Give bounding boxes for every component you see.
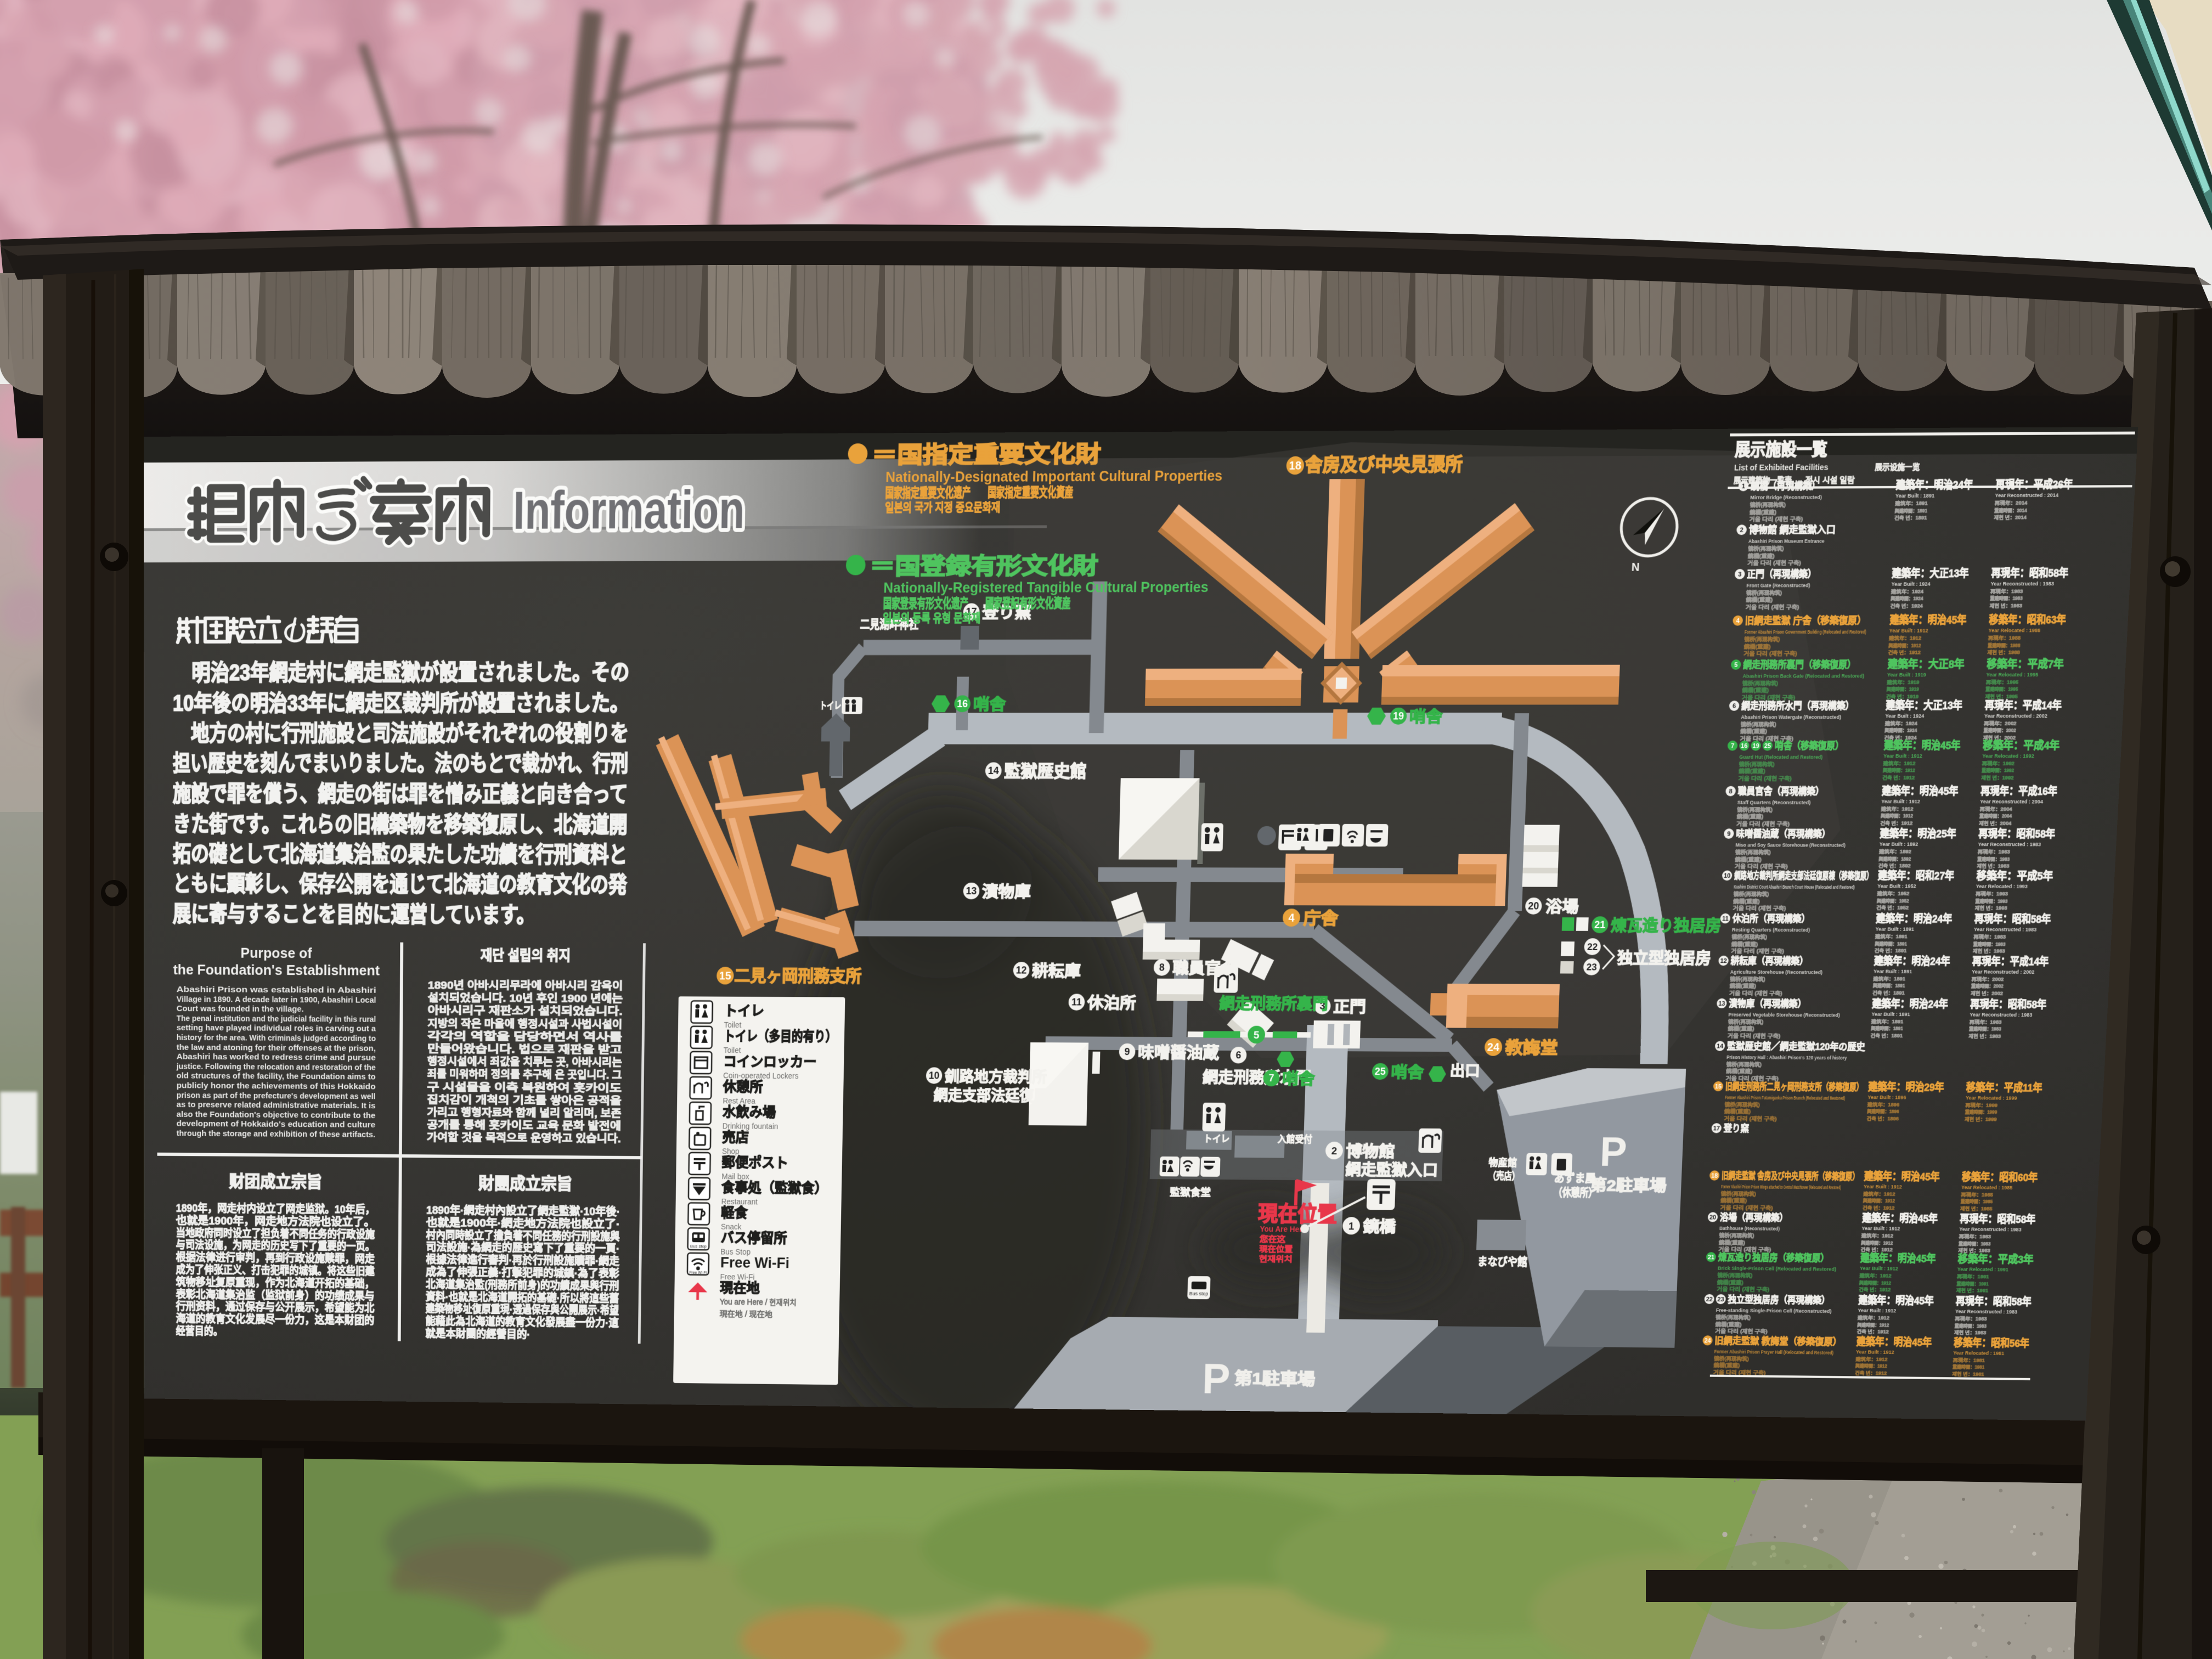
svg-text:建築年：大正13年: 建築年：大正13年 xyxy=(1892,567,1969,580)
svg-text:Miso and Soy Sauce Storehouse: Miso and Soy Sauce Storehouse (Reconstru… xyxy=(1735,842,1846,849)
svg-text:재현 년：1993: 재현 년：1993 xyxy=(1975,905,2008,911)
svg-text:移築年：昭和63年: 移築年：昭和63年 xyxy=(1989,613,2067,627)
svg-text:旧網走刑務所二見ヶ岡刑務支所（移築復原）: 旧網走刑務所二見ヶ岡刑務支所（移築復原） xyxy=(1725,1081,1864,1093)
svg-text:거울 다리 (재현 구축): 거울 다리 (재현 구축) xyxy=(1715,1328,1768,1334)
svg-text:再現年：1999: 再現年：1999 xyxy=(1965,1102,1997,1108)
svg-text:건축 년：1891: 건축 년：1891 xyxy=(1894,515,1927,521)
svg-text:鏡橋(重建): 鏡橋(重建) xyxy=(1729,983,1756,989)
svg-text:Year Built : 1892: Year Built : 1892 xyxy=(1879,842,1918,847)
svg-text:거울 다리 (재현 구축): 거울 다리 (재현 구축) xyxy=(1746,604,1799,611)
svg-text:鏡橋(重建): 鏡橋(重建) xyxy=(1741,687,1769,693)
svg-text:거울 다리 (재현 구축): 거울 다리 (재현 구축) xyxy=(1720,1204,1773,1211)
svg-text:再現年：2014: 再現年：2014 xyxy=(1995,500,2028,506)
svg-text:興建時間：1912: 興建時間：1912 xyxy=(1863,1198,1895,1204)
svg-text:建筑年：1912: 建筑年：1912 xyxy=(1863,1191,1895,1197)
svg-text:Bathhouse (Reconstructed): Bathhouse (Reconstructed) xyxy=(1719,1226,1780,1232)
svg-text:Year Built : 1891: Year Built : 1891 xyxy=(1874,969,1912,975)
svg-text:17: 17 xyxy=(1713,1125,1720,1132)
svg-text:거울 다리 (재현 구축): 거울 다리 (재현 구축) xyxy=(1724,1115,1777,1122)
svg-text:24: 24 xyxy=(1704,1338,1712,1344)
svg-text:興建時間：1912: 興建時間：1912 xyxy=(1883,768,1916,773)
svg-text:再現年：1991: 再現年：1991 xyxy=(1957,1274,1989,1280)
svg-text:建築年：明治45年: 建築年：明治45年 xyxy=(1864,1170,1940,1183)
svg-text:镜桥(再现构筑): 镜桥(再现构筑) xyxy=(1730,976,1765,983)
svg-text:建築年：明治24年: 建築年：明治24年 xyxy=(1895,478,1973,492)
svg-text:再現年：1981: 再現年：1981 xyxy=(1953,1357,1985,1363)
svg-text:再現年：昭和58年: 再現年：昭和58年 xyxy=(1991,566,2069,579)
svg-text:興建時間：1912: 興建時間：1912 xyxy=(1857,1322,1889,1328)
svg-text:镜桥(再现构筑): 镜桥(再现构筑) xyxy=(1734,891,1769,897)
svg-text:Prison History Hall : Abashiri: Prison History Hall : Abashiri Prison's … xyxy=(1726,1054,1847,1061)
svg-text:興建時間：1952: 興建時間：1952 xyxy=(1877,898,1909,904)
svg-text:建筑年：1919: 建筑年：1919 xyxy=(1886,679,1920,685)
svg-text:건축 년：1891: 건축 년：1891 xyxy=(1872,990,1905,996)
svg-text:鏡橋(重建): 鏡橋(重建) xyxy=(1724,1108,1751,1114)
svg-text:鏡橋(重建): 鏡橋(重建) xyxy=(1747,553,1775,560)
svg-text:List of Exhibited Facilities: List of Exhibited Facilities xyxy=(1734,463,1829,473)
svg-text:重建時間：1983: 重建時間：1983 xyxy=(1973,941,2006,947)
svg-text:浴場（再現構築）: 浴場（再現構築） xyxy=(1720,1212,1788,1223)
svg-text:鏡橋(重建): 鏡橋(重建) xyxy=(1738,768,1765,774)
svg-text:재현 년：1983: 재현 년：1983 xyxy=(1958,1248,1990,1254)
svg-text:건축 년：1896: 건축 년：1896 xyxy=(1866,1116,1899,1122)
svg-text:镜桥(再现构筑): 镜桥(再现构筑) xyxy=(1719,1232,1754,1239)
svg-text:休泊所（再現構築）: 休泊所（再現構築） xyxy=(1732,913,1810,924)
svg-text:重建時間：1988: 重建時間：1988 xyxy=(1988,642,2021,648)
svg-text:鏡橋(重建): 鏡橋(重建) xyxy=(1734,856,1762,862)
svg-text:镜桥(再现构筑): 镜桥(再现构筑) xyxy=(1746,590,1782,596)
svg-text:Abashiri Prison Watergate (Rec: Abashiri Prison Watergate (Reconstructed… xyxy=(1741,714,1841,720)
svg-text:建筑年：1891: 建筑年：1891 xyxy=(1894,500,1928,506)
svg-text:재현 년：1983: 재현 년：1983 xyxy=(1989,603,2022,609)
svg-text:Year Built : 1891: Year Built : 1891 xyxy=(1895,493,1935,499)
svg-text:建築年：明治45年: 建築年：明治45年 xyxy=(1860,1252,1936,1265)
svg-text:鏡橋(重建): 鏡橋(重建) xyxy=(1740,728,1767,734)
svg-text:再現年：1983: 再現年：1983 xyxy=(1959,1234,1991,1240)
svg-text:鏡橋(重建): 鏡橋(重建) xyxy=(1713,1362,1740,1369)
svg-text:移築年：平成4年: 移築年：平成4年 xyxy=(1983,739,2060,752)
svg-text:건축 년：1912: 건축 년：1912 xyxy=(1859,1286,1891,1293)
svg-text:재현 년：1992: 재현 년：1992 xyxy=(1981,775,2014,780)
svg-text:建筑年：1912: 建筑年：1912 xyxy=(1859,1273,1892,1279)
svg-text:移築年：平成7年: 移築年：平成7年 xyxy=(1987,657,2064,670)
svg-text:6: 6 xyxy=(1733,703,1736,709)
svg-text:Year Built : 1912: Year Built : 1912 xyxy=(1861,1226,1900,1232)
svg-text:正門（再現構築）: 正門（再現構築） xyxy=(1747,568,1816,580)
svg-text:再現年：平成26年: 再現年：平成26年 xyxy=(1995,478,2073,492)
svg-text:展示设施一览: 展示设施一览 xyxy=(1875,462,1920,471)
svg-text:Year Built : 1924: Year Built : 1924 xyxy=(1891,581,1930,587)
svg-text:興建時間：1924: 興建時間：1924 xyxy=(1884,727,1917,733)
svg-text:建築年：明治45年: 建築年：明治45年 xyxy=(1883,739,1961,752)
svg-text:거울 다리 (재현 구축): 거울 다리 (재현 구축) xyxy=(1718,1246,1771,1252)
svg-text:鏡橋(重建): 鏡橋(重建) xyxy=(1733,898,1760,904)
svg-text:建筑年：1892: 建筑年：1892 xyxy=(1878,849,1912,854)
svg-text:建築年：明治45年: 建築年：明治45年 xyxy=(1862,1212,1938,1225)
svg-text:18: 18 xyxy=(1711,1173,1718,1180)
svg-text:鏡橋(重建): 鏡橋(重建) xyxy=(1714,1321,1741,1328)
svg-text:거울 다리 (재현 구축): 거울 다리 (재현 구축) xyxy=(1731,948,1784,955)
svg-text:建築年：明治24年: 建築年：明治24年 xyxy=(1876,912,1953,926)
svg-text:재현 년：2004: 재현 년：2004 xyxy=(1979,820,2012,826)
svg-text:Staff Quarters (Reconstructed): Staff Quarters (Reconstructed) xyxy=(1737,800,1811,806)
svg-text:鏡橋(重建): 鏡橋(重建) xyxy=(1725,1068,1753,1074)
svg-text:23: 23 xyxy=(1717,1296,1724,1303)
svg-text:건축 년：1912: 건축 년：1912 xyxy=(1855,1370,1887,1376)
svg-text:镜桥(再现构筑): 镜桥(再现构筑) xyxy=(1726,1061,1762,1068)
svg-text:哨舎（移築復原）: 哨舎（移築復原） xyxy=(1775,740,1844,752)
svg-text:Agriculture Storehouse (Recons: Agriculture Storehouse (Reconstructed) xyxy=(1730,969,1823,976)
svg-text:Former Abashiri Prison Futamig: Former Abashiri Prison Futamigaoka Priso… xyxy=(1725,1094,1845,1102)
svg-text:镜桥(再现构筑): 镜桥(再现构筑) xyxy=(1716,1314,1751,1321)
svg-text:Year Built : 1891: Year Built : 1891 xyxy=(1875,926,1914,932)
svg-text:14: 14 xyxy=(1717,1043,1724,1050)
svg-text:镜桥(再现构筑): 镜桥(再现构筑) xyxy=(1748,545,1784,552)
svg-text:建築年：明治24年: 建築年：明治24年 xyxy=(1872,997,1949,1011)
svg-text:재현 년：2014: 재현 년：2014 xyxy=(1994,515,2027,521)
svg-text:建筑年：1912: 建筑年：1912 xyxy=(1857,1315,1890,1321)
svg-text:8: 8 xyxy=(1729,788,1733,795)
svg-text:7: 7 xyxy=(1731,743,1735,749)
svg-text:镜桥(再现构筑): 镜桥(再现构筑) xyxy=(1728,1019,1764,1025)
svg-text:再現年：1983: 再現年：1983 xyxy=(1990,589,2023,595)
svg-text:鏡橋(重建): 鏡橋(重建) xyxy=(1749,509,1777,516)
svg-text:再現年：1985: 再現年：1985 xyxy=(1961,1192,1993,1198)
svg-text:重建時間：1991: 重建時間：1991 xyxy=(1956,1281,1989,1287)
svg-text:Year Reconstructed : 2004: Year Reconstructed : 2004 xyxy=(1980,799,2043,805)
svg-text:登り窯: 登り窯 xyxy=(1723,1122,1749,1134)
svg-text:独立型独居房（再現構築）: 独立型独居房（再現構築） xyxy=(1728,1294,1830,1306)
svg-text:거울 다리 (재현 구축): 거울 다리 (재현 구축) xyxy=(1736,821,1790,827)
svg-text:興建時間：1891: 興建時間：1891 xyxy=(1875,941,1907,946)
svg-text:건축 년：1891: 건축 년：1891 xyxy=(1870,1032,1903,1039)
svg-text:건축 년：1912: 건축 년：1912 xyxy=(1888,650,1921,656)
svg-text:20: 20 xyxy=(1709,1214,1717,1221)
svg-text:再現年：平成14年: 再現年：平成14年 xyxy=(1984,699,2062,712)
svg-text:건축 년：1891: 건축 년：1891 xyxy=(1875,947,1907,953)
svg-text:建筑年：1912: 建筑年：1912 xyxy=(1882,760,1916,766)
svg-text:釧路地方裁判所網走支部法廷復原棟（移築復原）: 釧路地方裁判所網走支部法廷復原棟（移築復原） xyxy=(1734,870,1874,882)
svg-text:21: 21 xyxy=(1708,1254,1715,1261)
svg-text:건축 년：1912: 건축 년：1912 xyxy=(1882,775,1915,780)
svg-text:興建時間：1912: 興建時間：1912 xyxy=(1888,642,1921,648)
svg-text:10: 10 xyxy=(1724,873,1731,879)
svg-text:興建時間：1924: 興建時間：1924 xyxy=(1891,596,1923,602)
svg-text:Abashiri Prison Back Gate (Rel: Abashiri Prison Back Gate (Relocated and… xyxy=(1742,673,1864,680)
svg-text:煉瓦造り独居房（移築復原）: 煉瓦造り独居房（移築復原） xyxy=(1718,1251,1829,1263)
svg-text:Year Built : 1912: Year Built : 1912 xyxy=(1889,628,1928,634)
svg-text:Former Abashiri Prison Prison: Former Abashiri Prison Prison Wings atta… xyxy=(1721,1184,1841,1191)
svg-text:建筑年：1891: 建筑年：1891 xyxy=(1872,976,1905,981)
svg-text:거울 다리 (재현 구축): 거울 다리 (재현 구축) xyxy=(1735,863,1788,870)
svg-text:Year Relocated : 1993: Year Relocated : 1993 xyxy=(1976,883,2028,889)
svg-text:11: 11 xyxy=(1722,916,1729,922)
svg-text:Year Built : 1924: Year Built : 1924 xyxy=(1885,713,1924,719)
svg-text:再現年：1992: 再現年：1992 xyxy=(1982,760,2015,766)
svg-text:建築年：明治29年: 建築年：明治29年 xyxy=(1868,1080,1944,1093)
svg-text:재현 년：1991: 재현 년：1991 xyxy=(1956,1288,1989,1294)
svg-text:再現年：昭和58年: 再現年：昭和58年 xyxy=(1960,1212,2036,1226)
svg-text:博物館 網走監獄入口: 博物館 網走監獄入口 xyxy=(1748,524,1836,535)
svg-text:Abashiri Prison Museum Entranc: Abashiri Prison Museum Entrance xyxy=(1748,538,1825,545)
svg-text:興建時間：1896: 興建時間：1896 xyxy=(1867,1108,1899,1114)
svg-text:移築年：平成5年: 移築年：平成5年 xyxy=(1976,870,2053,883)
svg-text:重建時間：2002: 重建時間：2002 xyxy=(1983,727,2016,733)
svg-text:9: 9 xyxy=(1727,831,1731,837)
svg-text:重建時間：1985: 重建時間：1985 xyxy=(1961,1199,1993,1205)
svg-text:Former Abashiri Prison Governm: Former Abashiri Prison Government Buildi… xyxy=(1745,629,1866,635)
svg-text:15: 15 xyxy=(1715,1084,1722,1090)
svg-text:移築年：昭和56年: 移築年：昭和56年 xyxy=(1954,1336,2030,1350)
svg-text:Year Relocated : 1991: Year Relocated : 1991 xyxy=(1957,1266,2009,1272)
svg-text:Brick Single-Prison Cell (Relo: Brick Single-Prison Cell (Relocated and … xyxy=(1718,1266,1836,1273)
svg-text:재현 년：1999: 재현 년：1999 xyxy=(1965,1116,1997,1122)
svg-text:再現年：1995: 再現年：1995 xyxy=(1986,679,2019,685)
svg-text:建筑年：1891: 建筑年：1891 xyxy=(1870,1019,1903,1025)
svg-text:再現年：昭和58年: 再現年：昭和58年 xyxy=(1974,912,2051,926)
svg-text:Kushiro District Court Abashir: Kushiro District Court Abashiri Branch C… xyxy=(1734,884,1855,890)
svg-text:再現年：1993: 再現年：1993 xyxy=(1976,891,2008,896)
svg-text:鏡橋(重建): 鏡橋(重建) xyxy=(1718,1239,1746,1246)
svg-text:建築年：明治45年: 建築年：明治45年 xyxy=(1858,1294,1934,1307)
svg-text:鏡橋(重建): 鏡橋(重建) xyxy=(1743,644,1770,650)
svg-text:職員官舎（再現構築）: 職員官舎（再現構築） xyxy=(1737,786,1824,797)
svg-text:網走刑務所水門（再現構築）: 網走刑務所水門（再現構築） xyxy=(1741,700,1854,712)
svg-text:興建時間：1912: 興建時間：1912 xyxy=(1881,813,1914,819)
svg-text:거울 다리 (재현 구축): 거울 다리 (재현 구축) xyxy=(1738,775,1792,781)
svg-text:建築年：明治24年: 建築年：明治24年 xyxy=(1874,955,1950,968)
svg-text:再現年：昭和58年: 再現年：昭和58年 xyxy=(1978,827,2056,840)
svg-text:再現年：1983: 再現年：1983 xyxy=(1973,934,2006,939)
svg-text:Year Built : 1891: Year Built : 1891 xyxy=(1871,1012,1910,1018)
svg-text:13: 13 xyxy=(1718,1001,1725,1007)
svg-text:鏡橋(重建): 鏡橋(重建) xyxy=(1727,1025,1754,1031)
svg-text:镜桥(再现构筑): 镜桥(再现构筑) xyxy=(1744,636,1780,642)
svg-text:건축 년：1924: 건축 년：1924 xyxy=(1890,603,1923,609)
svg-text:建築年：大正8年: 建築年：大正8年 xyxy=(1887,658,1965,671)
svg-text:移築年：平成3年: 移築年：平成3年 xyxy=(1957,1252,2034,1266)
svg-text:重建時間：1983: 重建時間：1983 xyxy=(1959,1241,1991,1247)
svg-text:Year Built : 1912: Year Built : 1912 xyxy=(1858,1308,1896,1314)
svg-text:2: 2 xyxy=(1740,527,1743,534)
svg-text:Front Gate (Reconstructed): Front Gate (Reconstructed) xyxy=(1746,583,1810,589)
svg-text:3: 3 xyxy=(1738,571,1742,578)
svg-text:Year Reconstructed : 2014: Year Reconstructed : 2014 xyxy=(1995,492,2058,498)
svg-text:建筑年：1896: 建筑年：1896 xyxy=(1867,1102,1900,1108)
svg-text:1: 1 xyxy=(1742,483,1746,490)
svg-text:重建時間：1983: 重建時間：1983 xyxy=(1977,856,2010,862)
svg-text:16: 16 xyxy=(1741,743,1748,749)
svg-text:镜桥(再现构筑): 镜桥(再现构筑) xyxy=(1717,1272,1752,1279)
svg-text:건축 년：1919: 건축 년：1919 xyxy=(1886,693,1919,699)
svg-text:镜桥(再现构筑): 镜桥(再现构筑) xyxy=(1731,934,1767,940)
svg-text:거울 다리 (재현 구축): 거울 다리 (재현 구축) xyxy=(1733,905,1786,911)
svg-text:Year Relocated : 1999: Year Relocated : 1999 xyxy=(1966,1095,2017,1101)
svg-text:거울 다리 (재현 구축): 거울 다리 (재현 구축) xyxy=(1728,1032,1781,1039)
svg-text:Year Relocated : 1981: Year Relocated : 1981 xyxy=(1953,1350,2004,1356)
svg-text:Year Reconstructed : 2002: Year Reconstructed : 2002 xyxy=(1984,713,2047,719)
svg-text:再現年：平成16年: 再現年：平成16年 xyxy=(1980,785,2058,798)
svg-text:거울 다리 (재현 구축): 거울 다리 (재현 구축) xyxy=(1717,1286,1769,1293)
svg-text:再現年：2004: 再現年：2004 xyxy=(1979,806,2012,812)
svg-text:建築年：明治45年: 建築年：明治45年 xyxy=(1889,613,1967,627)
svg-text:거울 다리 (재현 구축): 거울 다리 (재현 구축) xyxy=(1743,650,1797,657)
svg-text:Free-standing Single-Prison Ce: Free-standing Single-Prison Cell (Recons… xyxy=(1716,1307,1832,1314)
svg-text:Year Built : 1912: Year Built : 1912 xyxy=(1856,1349,1894,1355)
svg-text:거울 다리 (재현 구축): 거울 다리 (재현 구축) xyxy=(1749,516,1803,522)
svg-text:镜桥(再现构筑): 镜桥(再现构筑) xyxy=(1739,761,1775,767)
svg-text:재현 년：1983: 재현 년：1983 xyxy=(1973,948,2006,953)
svg-text:건축 년：1912: 건축 년：1912 xyxy=(1857,1329,1889,1335)
svg-text:建筑年：1924: 建筑年：1924 xyxy=(1884,720,1918,726)
svg-text:鏡橋(重建): 鏡橋(重建) xyxy=(1745,596,1773,603)
svg-text:漬物庫（再現構築）: 漬物庫（再現構築） xyxy=(1729,998,1807,1009)
svg-text:興建時間：1891: 興建時間：1891 xyxy=(1873,983,1905,988)
svg-text:展示施設一覧: 展示施設一覧 xyxy=(1735,439,1828,460)
svg-text:19: 19 xyxy=(1752,743,1759,749)
svg-text:建筑年：1952: 建筑年：1952 xyxy=(1876,890,1910,896)
svg-text:Preserved Vegetable Storehouse: Preserved Vegetable Storehouse (Reconstr… xyxy=(1728,1012,1840,1018)
svg-text:重建時間：1993: 重建時間：1993 xyxy=(1975,898,2008,904)
svg-text:重建時間：1995: 重建時間：1995 xyxy=(1985,686,2018,692)
svg-text:재현 년：1985: 재현 년：1985 xyxy=(1960,1206,1993,1212)
svg-text:重建時間：1983: 重建時間：1983 xyxy=(1955,1323,1987,1329)
svg-text:建築年：明治25年: 建築年：明治25年 xyxy=(1880,827,1956,840)
svg-text:重建時間：1983: 重建時間：1983 xyxy=(1990,595,2023,601)
svg-text:거울 다리 (재현 구축): 거울 다리 (재현 구축) xyxy=(1729,990,1782,996)
svg-text:建筑年：1912: 建筑年：1912 xyxy=(1880,806,1914,811)
svg-text:건축 년：1912: 건축 년：1912 xyxy=(1860,1246,1893,1252)
svg-text:Year Relocated : 1988: Year Relocated : 1988 xyxy=(1988,628,2040,634)
svg-text:거울 다리 (재현 구축): 거울 다리 (재현 구축) xyxy=(1742,695,1796,701)
svg-text:Guard Hut (Relocated and Resto: Guard Hut (Relocated and Restored) xyxy=(1739,754,1822,760)
svg-text:建築年：明治45年: 建築年：明治45年 xyxy=(1882,785,1959,798)
svg-text:移築年：平成11年: 移築年：平成11年 xyxy=(1966,1081,2042,1094)
svg-text:5: 5 xyxy=(1734,662,1738,668)
svg-text:建築年：昭和27年: 建築年：昭和27年 xyxy=(1878,869,1955,882)
svg-text:再現年：2002: 再現年：2002 xyxy=(1984,720,2017,726)
svg-text:Year Built : 1896: Year Built : 1896 xyxy=(1867,1094,1906,1101)
svg-text:재현 년：1988: 재현 년：1988 xyxy=(1987,650,2020,656)
svg-text:鏡橋（再現構築）: 鏡橋（再現構築） xyxy=(1751,480,1820,492)
svg-text:鏡橋(重建): 鏡橋(重建) xyxy=(1731,941,1758,947)
svg-text:镜桥(再现构筑): 镜桥(再现构筑) xyxy=(1724,1102,1760,1108)
svg-text:旧網走監獄 庁舎（移築復原）: 旧網走監獄 庁舎（移築復原） xyxy=(1745,614,1866,626)
svg-text:建筑年：1912: 建筑年：1912 xyxy=(1861,1233,1894,1239)
svg-text:재현 년：1995: 재현 년：1995 xyxy=(1985,693,2018,699)
svg-text:재현 년：1983: 재현 년：1983 xyxy=(1968,1033,2001,1039)
svg-text:鏡橋(重建): 鏡橋(重建) xyxy=(1720,1197,1747,1203)
svg-text:거울 다리 (재현 구축): 거울 다리 (재현 구축) xyxy=(1725,1075,1779,1082)
svg-text:再現年：昭和58年: 再現年：昭和58年 xyxy=(1970,998,2047,1011)
svg-text:重建時間：1999: 重建時間：1999 xyxy=(1965,1109,1997,1115)
svg-text:建筑年：1912: 建筑年：1912 xyxy=(1888,635,1922,641)
svg-text:Resting Quarters (Reconstructe: Resting Quarters (Reconstructed) xyxy=(1732,927,1810,934)
svg-text:興建時間：1892: 興建時間：1892 xyxy=(1878,856,1911,861)
svg-text:Year Reconstructed : 1983: Year Reconstructed : 1983 xyxy=(1974,927,2037,933)
svg-text:Year Built : 1919: Year Built : 1919 xyxy=(1887,672,1926,678)
svg-text:重建時間：2014: 重建時間：2014 xyxy=(1994,507,2027,513)
svg-text:건축 년：1912: 건축 년：1912 xyxy=(1863,1205,1895,1211)
svg-text:Mirror Bridge (Reconstructed): Mirror Bridge (Reconstructed) xyxy=(1750,494,1822,501)
svg-text:興建時間：1912: 興建時間：1912 xyxy=(1861,1240,1893,1246)
svg-text:旧網走監獄 舎房及び中央見張所（移築復原）: 旧網走監獄 舎房及び中央見張所（移築復原） xyxy=(1722,1170,1859,1182)
svg-text:興建時間：1912: 興建時間：1912 xyxy=(1855,1363,1888,1369)
svg-text:Year Reconstructed : 2002: Year Reconstructed : 2002 xyxy=(1972,969,2035,975)
svg-text:建築年：大正13年: 建築年：大正13年 xyxy=(1886,699,1963,712)
svg-text:镜桥(再现构筑): 镜桥(再现构筑) xyxy=(1721,1190,1756,1197)
svg-text:12: 12 xyxy=(1720,958,1727,964)
svg-text:재현 년：1983: 재현 년：1983 xyxy=(1977,863,2010,868)
svg-text:再現年：1988: 再現年：1988 xyxy=(1988,635,2021,641)
svg-text:再現年：2002: 再現年：2002 xyxy=(1971,977,2004,983)
svg-text:Year Reconstructed : 1983: Year Reconstructed : 1983 xyxy=(1970,1012,2032,1018)
svg-text:건축 년：1892: 건축 년：1892 xyxy=(1878,863,1911,868)
svg-text:재현 년：2002: 재현 년：2002 xyxy=(1971,990,2004,996)
svg-text:再現年：昭和58年: 再現年：昭和58年 xyxy=(1955,1295,2032,1308)
svg-text:건축 년：1952: 건축 년：1952 xyxy=(1876,905,1909,910)
svg-text:重建時間：2004: 重建時間：2004 xyxy=(1979,813,2012,819)
svg-text:Year Built : 1912: Year Built : 1912 xyxy=(1860,1266,1898,1272)
svg-text:镜桥(再现构筑): 镜桥(再现构筑) xyxy=(1714,1356,1749,1362)
svg-text:Year Built : 1952: Year Built : 1952 xyxy=(1877,883,1916,889)
svg-text:Year Reconstructed : 1983: Year Reconstructed : 1983 xyxy=(1978,842,2041,848)
svg-text:Year Reconstructed : 1983: Year Reconstructed : 1983 xyxy=(1955,1308,2018,1314)
svg-text:鏡橋(重建): 鏡橋(重建) xyxy=(1736,813,1763,819)
svg-text:興建時間：1919: 興建時間：1919 xyxy=(1887,686,1920,692)
svg-text:建筑年：1924: 建筑年：1924 xyxy=(1891,589,1924,595)
svg-text:Year Relocated : 1985: Year Relocated : 1985 xyxy=(1961,1184,2013,1190)
svg-text:重建時間：1983: 重建時間：1983 xyxy=(1969,1026,2001,1032)
svg-text:移築年：昭和60年: 移築年：昭和60年 xyxy=(1961,1171,2038,1184)
svg-text:再現年：平成14年: 再現年：平成14年 xyxy=(1972,955,2049,968)
svg-text:건축 년：1912: 건축 년：1912 xyxy=(1880,820,1913,826)
svg-text:镜桥(再现构筑): 镜桥(再现构筑) xyxy=(1735,849,1771,855)
svg-text:镜桥(再现构筑): 镜桥(再现构筑) xyxy=(1742,680,1778,686)
svg-text:建筑年：1891: 建筑年：1891 xyxy=(1875,934,1908,939)
svg-text:22: 22 xyxy=(1706,1296,1713,1303)
svg-text:Year Reconstructed : 1983: Year Reconstructed : 1983 xyxy=(1959,1226,2022,1232)
svg-text:興建時間：1912: 興建時間：1912 xyxy=(1859,1280,1892,1286)
svg-text:建筑年：1912: 建筑年：1912 xyxy=(1855,1356,1888,1362)
svg-text:再現年：1983: 再現年：1983 xyxy=(1978,849,2011,854)
svg-text:再現年：1983: 再現年：1983 xyxy=(1969,1019,2002,1025)
svg-text:镜桥(再现构筑): 镜桥(再现构筑) xyxy=(1750,501,1786,508)
svg-text:再現年：1983: 再現年：1983 xyxy=(1955,1316,1987,1322)
svg-text:興建時間：1891: 興建時間：1891 xyxy=(1894,508,1927,514)
svg-text:Year Reconstructed : 1983: Year Reconstructed : 1983 xyxy=(1990,581,2054,587)
svg-text:重建時間：1992: 重建時間：1992 xyxy=(1982,768,2015,773)
svg-text:建築年：明治45年: 建築年：明治45年 xyxy=(1856,1335,1932,1349)
svg-text:镜桥(再现构筑): 镜桥(再现构筑) xyxy=(1741,721,1776,727)
svg-text:재현 년：1983: 재현 년：1983 xyxy=(1954,1330,1987,1336)
svg-text:味噌醤油蔵（再現構築）: 味噌醤油蔵（再現構築） xyxy=(1736,828,1831,839)
svg-text:Year Built : 1912: Year Built : 1912 xyxy=(1864,1184,1902,1190)
svg-text:旧網走監獄 教誨堂（移築復原）: 旧網走監獄 教誨堂（移築復原） xyxy=(1714,1335,1842,1347)
svg-text:耕耘庫（再現構築）: 耕耘庫（再現構築） xyxy=(1730,955,1808,967)
svg-text:監獄歴史館／網走監獄120年の歴史: 監獄歴史館／網走監獄120年の歴史 xyxy=(1727,1041,1866,1053)
svg-text:重建時間：2002: 重建時間：2002 xyxy=(1971,983,2004,989)
svg-text:鏡橋(重建): 鏡橋(重建) xyxy=(1717,1279,1743,1286)
svg-text:Year Built : 1912: Year Built : 1912 xyxy=(1883,753,1922,759)
svg-text:Former Abashiri Prison Prayer: Former Abashiri Prison Prayer Hall (Relo… xyxy=(1714,1349,1833,1356)
svg-text:興建時間：1891: 興建時間：1891 xyxy=(1871,1025,1903,1031)
svg-text:거울 다리 (재현 구축): 거울 다리 (재현 구축) xyxy=(1747,560,1801,566)
svg-text:재현 년：1981: 재현 년：1981 xyxy=(1952,1371,1984,1377)
svg-text:Year Relocated : 1995: Year Relocated : 1995 xyxy=(1986,672,2038,678)
svg-text:25: 25 xyxy=(1764,743,1771,749)
svg-text:網走刑務所裏門（移築復原）: 網走刑務所裏門（移築復原） xyxy=(1743,659,1856,670)
